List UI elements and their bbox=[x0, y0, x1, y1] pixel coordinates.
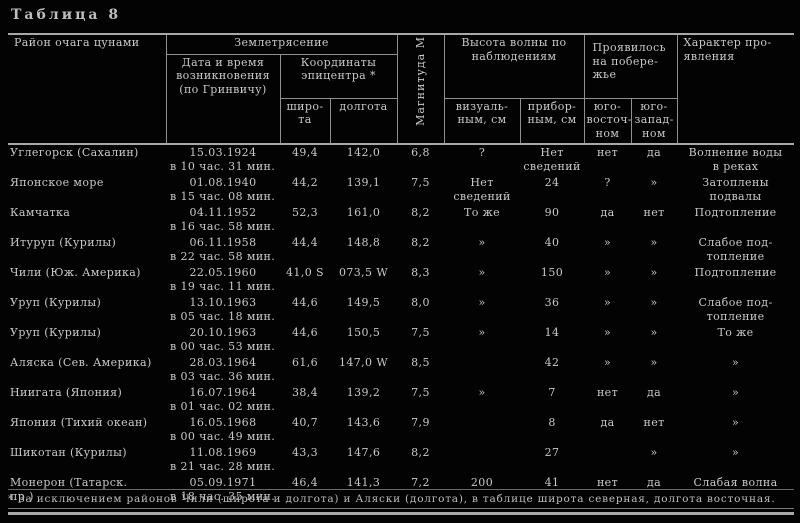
magnitude-cell: 8,3 bbox=[397, 265, 444, 295]
latitude-cell: 43,3 bbox=[280, 445, 330, 475]
date-cell: 20.10.1963в 00 час. 53 мин. bbox=[166, 325, 280, 355]
time-text: в 00 час. 49 мин. bbox=[168, 430, 278, 444]
region-cell: Шикотан (Курилы) bbox=[8, 445, 166, 475]
region-cell: Чили (Юж. Америка) bbox=[8, 265, 166, 295]
table-row: Углегорск (Сахалин)15.03.1924в 10 час. 3… bbox=[8, 144, 794, 175]
longitude-cell: 147,6 bbox=[330, 445, 397, 475]
magnitude-vertical-label: Магнитуда М bbox=[414, 36, 428, 126]
date-text: 20.10.1963 bbox=[168, 326, 278, 340]
table-row: Шикотан (Курилы)11.08.1969в 21 час. 28 м… bbox=[8, 445, 794, 475]
time-text: в 21 час. 28 мин. bbox=[168, 460, 278, 474]
region-cell: Япония (Тихий океан) bbox=[8, 415, 166, 445]
character-cell: Слабое под- топление bbox=[677, 235, 794, 265]
visual-height-cell bbox=[444, 355, 520, 385]
character-cell: Затоплены подвалы bbox=[677, 175, 794, 205]
date-text: 22.05.1960 bbox=[168, 266, 278, 280]
southeast-coast-cell: да bbox=[584, 205, 631, 235]
header-earthquake: Землетрясение bbox=[166, 34, 397, 54]
latitude-cell: 40,7 bbox=[280, 415, 330, 445]
time-text: в 03 час. 36 мин. bbox=[168, 370, 278, 384]
magnitude-cell: 7,9 bbox=[397, 415, 444, 445]
latitude-cell: 52,3 bbox=[280, 205, 330, 235]
instrumental-height-cell: 150 bbox=[520, 265, 584, 295]
table-row: Камчатка04.11.1952в 16 час. 58 мин.52,31… bbox=[8, 205, 794, 235]
latitude-cell: 49,4 bbox=[280, 144, 330, 175]
date-text: 11.08.1969 bbox=[168, 446, 278, 460]
longitude-cell: 148,8 bbox=[330, 235, 397, 265]
character-cell: Подтопление bbox=[677, 205, 794, 235]
instrumental-height-cell: 40 bbox=[520, 235, 584, 265]
table-header: Район очага цунами Землетрясение Магниту… bbox=[8, 34, 794, 144]
southeast-coast-cell: нет bbox=[584, 144, 631, 175]
footnote: * За исключением районов Чили (широта и … bbox=[8, 489, 794, 505]
date-cell: 11.08.1969в 21 час. 28 мин. bbox=[166, 445, 280, 475]
southwest-coast-cell: » bbox=[631, 295, 677, 325]
latitude-cell: 44,4 bbox=[280, 235, 330, 265]
date-text: 13.10.1963 bbox=[168, 296, 278, 310]
time-text: в 16 час. 58 мин. bbox=[168, 220, 278, 234]
southeast-coast-cell: » bbox=[584, 295, 631, 325]
instrumental-height-cell: 90 bbox=[520, 205, 584, 235]
date-cell: 04.11.1952в 16 час. 58 мин. bbox=[166, 205, 280, 235]
header-southeast: юго- восточ- ном bbox=[584, 98, 631, 144]
magnitude-cell: 8,5 bbox=[397, 355, 444, 385]
latitude-cell: 61,6 bbox=[280, 355, 330, 385]
date-text: 06.11.1958 bbox=[168, 236, 278, 250]
longitude-cell: 073,5 W bbox=[330, 265, 397, 295]
time-text: в 05 час. 18 мин. bbox=[168, 310, 278, 324]
character-cell: » bbox=[677, 385, 794, 415]
southwest-coast-cell: » bbox=[631, 235, 677, 265]
tsunami-table: Район очага цунами Землетрясение Магниту… bbox=[8, 33, 794, 505]
date-text: 04.11.1952 bbox=[168, 206, 278, 220]
date-text: 05.09.1971 bbox=[168, 476, 278, 490]
magnitude-cell: 7,5 bbox=[397, 175, 444, 205]
visual-height-cell: » bbox=[444, 325, 520, 355]
header-coast: Проявилось на побере- жье bbox=[584, 34, 677, 98]
time-text: в 19 час. 11 мин. bbox=[168, 280, 278, 294]
date-text: 15.03.1924 bbox=[168, 146, 278, 160]
table-row: Ниигата (Япония)16.07.1964в 01 час. 02 м… bbox=[8, 385, 794, 415]
region-cell: Уруп (Курилы) bbox=[8, 295, 166, 325]
date-cell: 16.05.1968в 00 час. 49 мин. bbox=[166, 415, 280, 445]
instrumental-height-cell: 14 bbox=[520, 325, 584, 355]
header-latitude: широ- та bbox=[280, 98, 330, 144]
latitude-cell: 44,6 bbox=[280, 295, 330, 325]
magnitude-cell: 6,8 bbox=[397, 144, 444, 175]
region-cell: Аляска (Сев. Америка) bbox=[8, 355, 166, 385]
visual-height-cell: ? bbox=[444, 144, 520, 175]
southeast-coast-cell bbox=[584, 445, 631, 475]
longitude-cell: 139,2 bbox=[330, 385, 397, 415]
longitude-cell: 142,0 bbox=[330, 144, 397, 175]
date-text: 28.03.1964 bbox=[168, 356, 278, 370]
header-southwest: юго- запад- ном bbox=[631, 98, 677, 144]
instrumental-height-cell: 8 bbox=[520, 415, 584, 445]
longitude-cell: 150,5 bbox=[330, 325, 397, 355]
region-cell: Итуруп (Курилы) bbox=[8, 235, 166, 265]
southeast-coast-cell: » bbox=[584, 265, 631, 295]
date-cell: 22.05.1960в 19 час. 11 мин. bbox=[166, 265, 280, 295]
character-cell: » bbox=[677, 415, 794, 445]
magnitude-cell: 8,2 bbox=[397, 205, 444, 235]
southwest-coast-cell: » bbox=[631, 175, 677, 205]
date-cell: 16.07.1964в 01 час. 02 мин. bbox=[166, 385, 280, 415]
longitude-cell: 139,1 bbox=[330, 175, 397, 205]
instrumental-height-cell: 42 bbox=[520, 355, 584, 385]
table-row: Уруп (Курилы)20.10.1963в 00 час. 53 мин.… bbox=[8, 325, 794, 355]
table-body: Углегорск (Сахалин)15.03.1924в 10 час. 3… bbox=[8, 144, 794, 505]
region-cell: Уруп (Курилы) bbox=[8, 325, 166, 355]
instrumental-height-cell: 27 bbox=[520, 445, 584, 475]
bottom-rule-divider bbox=[8, 508, 794, 515]
magnitude-cell: 7,5 bbox=[397, 385, 444, 415]
visual-height-cell bbox=[444, 415, 520, 445]
latitude-cell: 44,2 bbox=[280, 175, 330, 205]
region-cell: Японское море bbox=[8, 175, 166, 205]
region-cell: Ниигата (Япония) bbox=[8, 385, 166, 415]
southeast-coast-cell: » bbox=[584, 235, 631, 265]
character-cell: Слабое под- топление bbox=[677, 295, 794, 325]
southwest-coast-cell: нет bbox=[631, 415, 677, 445]
table-row: Япония (Тихий океан)16.05.1968в 00 час. … bbox=[8, 415, 794, 445]
instrumental-height-cell: 36 bbox=[520, 295, 584, 325]
visual-height-cell: » bbox=[444, 385, 520, 415]
time-text: в 01 час. 02 мин. bbox=[168, 400, 278, 414]
latitude-cell: 38,4 bbox=[280, 385, 330, 415]
magnitude-cell: 8,0 bbox=[397, 295, 444, 325]
character-cell: » bbox=[677, 445, 794, 475]
date-cell: 06.11.1958в 22 час. 58 мин. bbox=[166, 235, 280, 265]
region-cell: Углегорск (Сахалин) bbox=[8, 144, 166, 175]
time-text: в 10 час. 31 мин. bbox=[168, 160, 278, 174]
magnitude-cell: 7,5 bbox=[397, 325, 444, 355]
character-cell: Волнение воды в реках bbox=[677, 144, 794, 175]
character-cell: Подтопление bbox=[677, 265, 794, 295]
southeast-coast-cell: ? bbox=[584, 175, 631, 205]
magnitude-cell: 8,2 bbox=[397, 235, 444, 265]
header-magnitude: Магнитуда М bbox=[397, 34, 444, 144]
header-wave-height: Высота волны по наблюдениям bbox=[444, 34, 584, 98]
instrumental-height-cell: Нет сведений bbox=[520, 144, 584, 175]
header-region: Район очага цунами bbox=[8, 34, 166, 144]
longitude-cell: 161,0 bbox=[330, 205, 397, 235]
header-instrumental: прибор- ным, см bbox=[520, 98, 584, 144]
visual-height-cell: Нет сведений bbox=[444, 175, 520, 205]
header-longitude: долгота bbox=[330, 98, 397, 144]
date-cell: 28.03.1964в 03 час. 36 мин. bbox=[166, 355, 280, 385]
southeast-coast-cell: да bbox=[584, 415, 631, 445]
table-row: Чили (Юж. Америка)22.05.1960в 19 час. 11… bbox=[8, 265, 794, 295]
longitude-cell: 147,0 W bbox=[330, 355, 397, 385]
table-row: Японское море01.08.1940в 15 час. 08 мин.… bbox=[8, 175, 794, 205]
longitude-cell: 149,5 bbox=[330, 295, 397, 325]
region-cell: Камчатка bbox=[8, 205, 166, 235]
time-text: в 15 час. 08 мин. bbox=[168, 190, 278, 204]
date-cell: 15.03.1924в 10 час. 31 мин. bbox=[166, 144, 280, 175]
southeast-coast-cell: » bbox=[584, 325, 631, 355]
table-row: Уруп (Курилы)13.10.1963в 05 час. 18 мин.… bbox=[8, 295, 794, 325]
instrumental-height-cell: 7 bbox=[520, 385, 584, 415]
header-datetime: Дата и время возникновения (по Гринвичу) bbox=[166, 54, 280, 144]
latitude-cell: 44,6 bbox=[280, 325, 330, 355]
header-character: Характер про- явления bbox=[677, 34, 794, 144]
latitude-cell: 41,0 S bbox=[280, 265, 330, 295]
instrumental-height-cell: 24 bbox=[520, 175, 584, 205]
southwest-coast-cell: нет bbox=[631, 205, 677, 235]
southwest-coast-cell: да bbox=[631, 385, 677, 415]
date-cell: 13.10.1963в 05 час. 18 мин. bbox=[166, 295, 280, 325]
time-text: в 22 час. 58 мин. bbox=[168, 250, 278, 264]
longitude-cell: 143,6 bbox=[330, 415, 397, 445]
visual-height-cell: То же bbox=[444, 205, 520, 235]
southwest-coast-cell: » bbox=[631, 355, 677, 385]
southwest-coast-cell: да bbox=[631, 144, 677, 175]
header-visual: визуаль- ным, см bbox=[444, 98, 520, 144]
southeast-coast-cell: нет bbox=[584, 385, 631, 415]
table-label: Таблица 8 bbox=[11, 7, 121, 23]
table-row: Итуруп (Курилы)06.11.1958в 22 час. 58 ми… bbox=[8, 235, 794, 265]
character-cell: » bbox=[677, 355, 794, 385]
date-text: 16.07.1964 bbox=[168, 386, 278, 400]
date-cell: 01.08.1940в 15 час. 08 мин. bbox=[166, 175, 280, 205]
southwest-coast-cell: » bbox=[631, 325, 677, 355]
southeast-coast-cell: » bbox=[584, 355, 631, 385]
visual-height-cell: » bbox=[444, 295, 520, 325]
southwest-coast-cell: » bbox=[631, 445, 677, 475]
southwest-coast-cell: » bbox=[631, 265, 677, 295]
header-coordinates: Координаты эпицентра * bbox=[280, 54, 397, 98]
character-cell: То же bbox=[677, 325, 794, 355]
magnitude-cell: 8,2 bbox=[397, 445, 444, 475]
visual-height-cell bbox=[444, 445, 520, 475]
time-text: в 00 час. 53 мин. bbox=[168, 340, 278, 354]
visual-height-cell: » bbox=[444, 265, 520, 295]
visual-height-cell: » bbox=[444, 235, 520, 265]
date-text: 16.05.1968 bbox=[168, 416, 278, 430]
date-text: 01.08.1940 bbox=[168, 176, 278, 190]
table-row: Аляска (Сев. Америка)28.03.1964в 03 час.… bbox=[8, 355, 794, 385]
